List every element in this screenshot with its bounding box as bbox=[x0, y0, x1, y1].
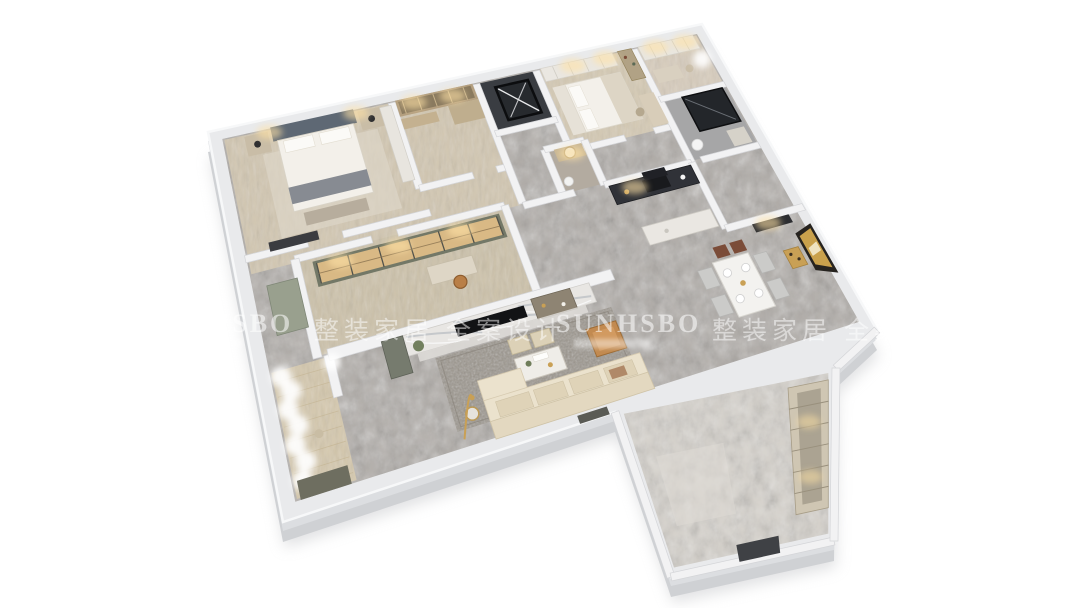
floorplan-render: SUNHSBO 整装家居 全案设计 SUNHSBO 整装家居 全案设计 bbox=[0, 0, 1080, 608]
floorplan-svg bbox=[0, 0, 1080, 608]
